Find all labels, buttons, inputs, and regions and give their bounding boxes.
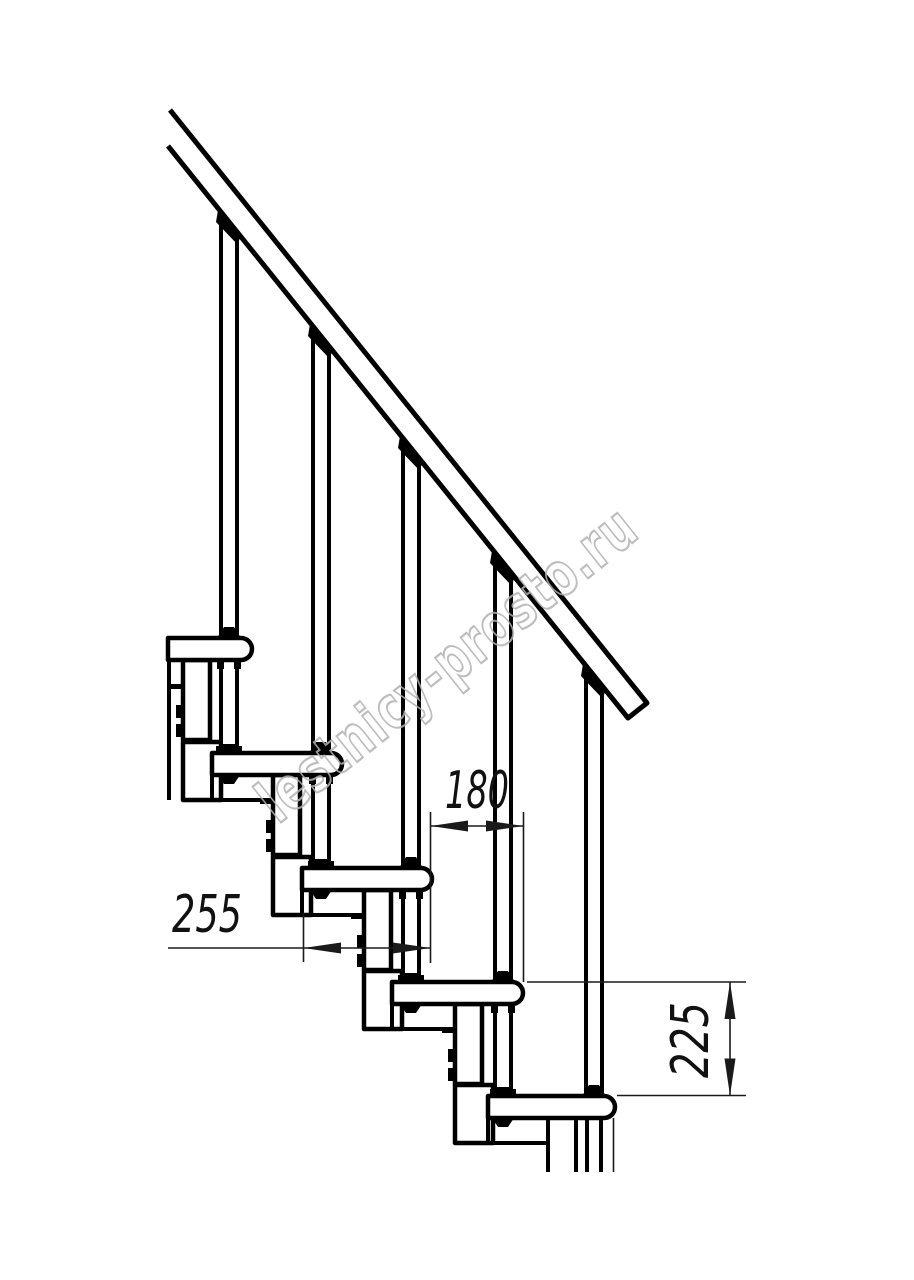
tread-4 bbox=[392, 982, 523, 1004]
dimension-value-225: 225 bbox=[661, 1002, 721, 1078]
support-column-module-5-cut bbox=[548, 1118, 576, 1172]
under-post-1 bbox=[216, 660, 242, 753]
bracket-plate bbox=[442, 1028, 455, 1033]
baluster-2 bbox=[309, 336, 333, 753]
bracket-plate bbox=[351, 914, 364, 919]
dimension-value-255: 255 bbox=[172, 885, 242, 945]
under-post-3 bbox=[398, 890, 424, 982]
bolt-tab bbox=[357, 954, 364, 967]
staircase-side-view-drawing: 180 255 225 lestnicy-prosto.ru bbox=[0, 0, 914, 1280]
bolt-tab bbox=[176, 705, 183, 718]
baluster-1 bbox=[217, 222, 241, 638]
bolt-tab bbox=[266, 839, 273, 852]
bolt-tab bbox=[448, 1049, 455, 1062]
tread-1 bbox=[168, 638, 252, 660]
under-post-5-cut bbox=[587, 1118, 614, 1172]
bracket-plate bbox=[170, 684, 183, 689]
dimension-value-180: 180 bbox=[445, 761, 509, 821]
staircase-drawing-canvas: 180 255 225 lestnicy-prosto.ru bbox=[0, 0, 914, 1280]
bolt-tab bbox=[448, 1068, 455, 1081]
dimension-riser-height: 225 bbox=[527, 982, 746, 1096]
bolt-tab bbox=[176, 724, 183, 737]
under-post-4 bbox=[490, 1004, 516, 1096]
tread-5 bbox=[488, 1096, 615, 1118]
baluster-5 bbox=[582, 676, 606, 1096]
tread-3 bbox=[302, 868, 432, 890]
bolt-tab bbox=[266, 820, 273, 833]
bolt-tab bbox=[357, 935, 364, 948]
